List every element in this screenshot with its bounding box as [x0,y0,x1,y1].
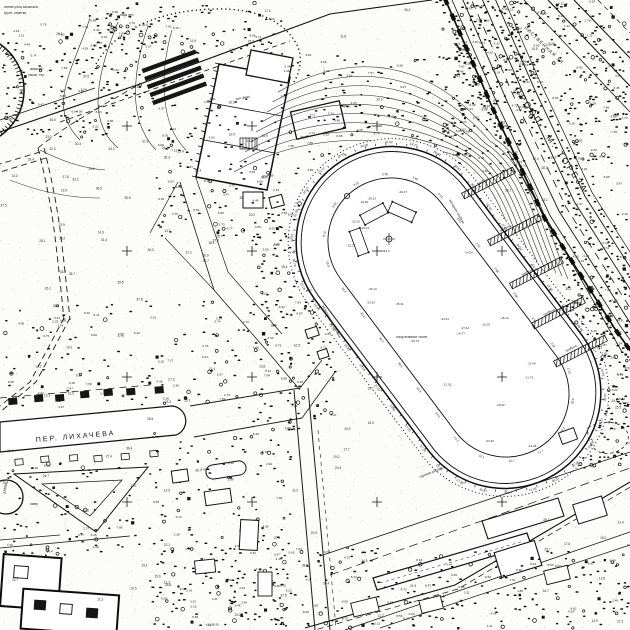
svg-text:-39.74: -39.74 [410,339,419,343]
svg-text:3.93: 3.93 [209,136,215,140]
svg-text:6.15: 6.15 [591,329,597,333]
svg-text:4.39: 4.39 [268,173,274,177]
svg-text:4.54: 4.54 [616,342,622,346]
svg-text:25.3: 25.3 [248,39,254,43]
svg-text:31.4: 31.4 [101,238,107,242]
svg-text:5.94: 5.94 [615,74,621,78]
svg-text:36.7: 36.7 [69,272,75,276]
svg-text:4.19: 4.19 [13,29,19,33]
svg-text:5.92: 5.92 [213,622,219,626]
svg-text:38.6: 38.6 [302,563,308,567]
svg-text:4.40: 4.40 [93,28,99,32]
svg-text:6.12: 6.12 [558,2,564,6]
svg-text:6.20: 6.20 [589,0,595,4]
svg-text:8.68: 8.68 [303,610,309,614]
svg-text:7.59: 7.59 [61,66,67,70]
svg-text:25.1: 25.1 [184,399,190,403]
svg-text:5.18: 5.18 [558,14,564,18]
svg-text:7.86: 7.86 [116,526,122,530]
svg-text:3.72: 3.72 [229,184,235,188]
svg-text:5.56: 5.56 [153,500,159,504]
svg-text:2.15: 2.15 [190,605,196,609]
svg-text:3.41: 3.41 [212,597,218,601]
svg-text:12.8: 12.8 [145,77,151,81]
svg-text:9.59: 9.59 [263,248,269,252]
svg-text:32.3: 32.3 [49,147,55,151]
svg-text:29.4: 29.4 [28,158,34,162]
svg-text:9.41: 9.41 [94,313,100,317]
svg-text:11.2: 11.2 [378,614,384,618]
svg-text:2.49: 2.49 [612,599,618,603]
svg-text:-14.28: -14.28 [528,444,537,448]
svg-text:7.64: 7.64 [296,547,302,551]
svg-text:7.79: 7.79 [82,25,88,29]
svg-text:3.74: 3.74 [81,88,87,92]
svg-text:15.0: 15.0 [600,536,606,540]
svg-text:2.82: 2.82 [325,332,331,336]
svg-text:31.0: 31.0 [68,391,74,395]
svg-text:сквер: сквер [30,502,38,506]
svg-text:-31.64: -31.64 [527,361,536,365]
svg-text:8.60: 8.60 [516,108,522,112]
svg-text:8.94: 8.94 [416,558,422,562]
svg-text:5.22: 5.22 [612,388,618,392]
svg-text:4.92: 4.92 [487,50,493,54]
svg-text:5.12: 5.12 [265,369,271,373]
svg-text:33.2: 33.2 [72,178,78,182]
svg-text:5.95: 5.95 [312,604,318,608]
svg-text:8.68: 8.68 [257,180,263,184]
svg-text:21.4: 21.4 [209,367,215,371]
svg-text:6.85: 6.85 [342,599,348,603]
svg-text:30.3: 30.3 [382,172,388,176]
svg-text:8.20: 8.20 [269,17,275,21]
svg-text:3.38: 3.38 [174,532,180,536]
svg-text:4.44: 4.44 [583,254,589,258]
svg-text:8.39: 8.39 [253,432,259,436]
svg-text:9.90: 9.90 [516,568,522,572]
svg-text:-29.47: -29.47 [399,190,408,194]
svg-text:6.65: 6.65 [336,134,342,138]
svg-text:2.72: 2.72 [243,320,249,324]
svg-text:4.22: 4.22 [113,68,119,72]
svg-text:7.47: 7.47 [67,386,73,390]
svg-text:23.1: 23.1 [542,198,548,202]
svg-text:4.47: 4.47 [576,202,582,206]
svg-text:36.2: 36.2 [404,8,410,12]
svg-text:36.5: 36.5 [50,118,56,122]
svg-text:5.47: 5.47 [223,193,229,197]
svg-text:4.38: 4.38 [76,110,82,114]
svg-text:27.8: 27.8 [62,175,68,179]
svg-text:15.6: 15.6 [154,575,160,579]
svg-text:7.94: 7.94 [264,374,270,378]
svg-text:6.20: 6.20 [134,331,140,335]
svg-text:31.9: 31.9 [142,139,148,143]
svg-text:37.5: 37.5 [280,593,286,597]
svg-text:27.4: 27.4 [106,454,112,458]
svg-text:18.5: 18.5 [208,241,214,245]
svg-text:4.47: 4.47 [58,405,64,409]
svg-text:32.7: 32.7 [203,259,209,263]
svg-text:8.11: 8.11 [600,155,606,159]
svg-text:9.63: 9.63 [168,179,174,183]
svg-text:4.42: 4.42 [578,259,584,263]
svg-text:3.30: 3.30 [482,169,488,173]
svg-text:34.7: 34.7 [543,589,549,593]
svg-text:4.30: 4.30 [573,254,579,258]
svg-text:9.68: 9.68 [8,380,14,384]
svg-text:34.4: 34.4 [323,582,329,586]
svg-text:6.48: 6.48 [457,69,463,73]
svg-text:9.68: 9.68 [387,600,393,604]
svg-text:244.0: 244.0 [382,249,390,253]
svg-text:25.7: 25.7 [544,547,550,551]
svg-text:26.2: 26.2 [56,32,62,36]
svg-text:3.31: 3.31 [190,599,196,603]
svg-text:14.4: 14.4 [47,550,53,554]
svg-text:16.4: 16.4 [7,449,13,453]
svg-text:-26.33: -26.33 [367,197,376,201]
svg-text:7.48: 7.48 [276,496,282,500]
svg-text:6.30: 6.30 [69,381,75,385]
svg-text:5.66: 5.66 [158,143,164,147]
svg-text:3.44: 3.44 [235,604,241,608]
svg-text:5.63: 5.63 [288,550,294,554]
svg-text:12.5: 12.5 [164,488,170,492]
svg-text:21.9: 21.9 [410,584,416,588]
svg-text:8.87: 8.87 [473,40,479,44]
svg-text:3.34: 3.34 [57,324,63,328]
svg-text:6.15: 6.15 [158,359,164,363]
svg-text:7.20: 7.20 [7,543,13,547]
svg-text:8.25: 8.25 [297,380,303,384]
svg-text:8.67: 8.67 [297,311,303,315]
svg-text:2.76: 2.76 [202,344,208,348]
svg-text:36.9: 36.9 [96,187,102,191]
svg-text:9.27: 9.27 [403,617,409,621]
svg-text:8.67: 8.67 [460,127,466,131]
svg-text:3.37: 3.37 [482,106,488,110]
svg-text:11.2: 11.2 [292,489,298,493]
svg-text:3.85: 3.85 [255,225,261,229]
svg-text:15.8: 15.8 [247,139,253,143]
svg-text:9.65: 9.65 [280,584,286,588]
svg-text:26.8: 26.8 [53,304,59,308]
svg-text:32.9: 32.9 [229,133,235,137]
svg-text:27.4: 27.4 [274,536,280,540]
svg-text:4.14: 4.14 [467,107,473,111]
svg-text:29.2: 29.2 [333,455,339,459]
svg-text:2.88: 2.88 [476,18,482,22]
svg-text:-11.73: -11.73 [525,375,534,379]
svg-text:19.7: 19.7 [367,386,373,390]
svg-text:12.2: 12.2 [164,581,170,585]
svg-text:7.22: 7.22 [605,288,611,292]
svg-text:13.6: 13.6 [259,364,265,368]
svg-text:7.79: 7.79 [621,116,627,120]
svg-text:9.98: 9.98 [90,19,96,23]
svg-text:22.9: 22.9 [61,188,67,192]
svg-text:11.5: 11.5 [262,292,268,296]
svg-text:4.39: 4.39 [82,46,88,50]
svg-text:7.57: 7.57 [368,71,374,75]
svg-text:38.7: 38.7 [541,166,547,170]
svg-text:4.72: 4.72 [512,103,518,107]
svg-text:33.0: 33.0 [376,98,382,102]
svg-text:16.0: 16.0 [368,421,374,425]
svg-text:15.4: 15.4 [281,265,287,269]
svg-text:6.97: 6.97 [159,106,165,110]
svg-text:8.80: 8.80 [281,377,287,381]
svg-text:8.80: 8.80 [552,96,558,100]
svg-text:4.74: 4.74 [255,35,261,39]
svg-text:линия улиц засыпана: линия улиц засыпана [4,5,38,9]
svg-text:35.1: 35.1 [565,287,571,291]
svg-text:35.5: 35.5 [118,281,124,285]
svg-text:5.47: 5.47 [331,413,337,417]
svg-text:3.72: 3.72 [324,550,330,554]
svg-text:12.4: 12.4 [618,521,624,525]
svg-text:-12.30: -12.30 [443,383,452,387]
svg-text:2.16: 2.16 [273,188,279,192]
svg-text:24.3: 24.3 [335,466,341,470]
svg-text:32.7: 32.7 [12,578,18,582]
svg-text:-15.18: -15.18 [481,322,490,326]
svg-text:5.71: 5.71 [479,41,485,45]
svg-text:14.2: 14.2 [35,365,41,369]
svg-text:3.23: 3.23 [150,316,156,320]
svg-text:35.6: 35.6 [124,196,130,200]
svg-text:10.0: 10.0 [234,613,240,617]
svg-text:5.34: 5.34 [351,575,357,579]
svg-text:8.22: 8.22 [84,311,90,315]
svg-text:-14.77: -14.77 [456,331,465,335]
svg-text:36.4: 36.4 [126,446,132,450]
svg-text:9.37: 9.37 [306,578,312,582]
svg-text:5.88: 5.88 [60,94,66,98]
svg-text:39.7: 39.7 [543,518,549,522]
svg-text:8.43: 8.43 [96,110,102,114]
svg-text:4.71: 4.71 [309,131,315,135]
svg-text:2.97: 2.97 [217,372,223,376]
svg-text:35.3: 35.3 [164,156,170,160]
svg-text:15.9: 15.9 [262,134,268,138]
svg-text:28.7: 28.7 [300,135,306,139]
svg-text:25.6: 25.6 [88,167,94,171]
svg-text:-12.20: -12.20 [351,220,360,224]
svg-text:36.57: 36.57 [603,393,608,401]
svg-text:4.11: 4.11 [487,624,493,628]
svg-text:4.43: 4.43 [239,586,245,590]
svg-text:3.53: 3.53 [281,211,287,215]
svg-text:3.34: 3.34 [267,336,273,340]
svg-text:16.2: 16.2 [228,101,234,105]
svg-text:9.34: 9.34 [202,355,208,359]
svg-text:9.47: 9.47 [400,85,406,89]
svg-text:8.93: 8.93 [269,226,275,230]
svg-text:-23.91: -23.91 [441,317,450,321]
svg-text:11.9: 11.9 [190,39,196,43]
svg-text:13.3: 13.3 [44,394,50,398]
svg-text:6.68: 6.68 [112,10,118,14]
svg-text:5.53: 5.53 [485,575,491,579]
svg-text:26.1: 26.1 [45,287,51,291]
svg-text:36.3: 36.3 [148,248,154,252]
svg-text:-18.14: -18.14 [500,316,509,320]
svg-text:8.62: 8.62 [511,151,517,155]
svg-text:34.2: 34.2 [444,129,450,133]
svg-text:8.48: 8.48 [478,156,484,160]
svg-text:20.0: 20.0 [499,121,505,125]
svg-text:-26.92: -26.92 [496,403,505,407]
svg-text:8.10: 8.10 [262,450,268,454]
svg-text:6.98: 6.98 [192,615,198,619]
svg-text:14.7: 14.7 [164,229,170,233]
svg-text:23.0: 23.0 [45,135,51,139]
svg-text:3.72: 3.72 [603,246,609,250]
svg-text:5.74: 5.74 [214,320,220,324]
svg-text:25.5: 25.5 [615,405,621,409]
svg-text:5.21: 5.21 [286,589,292,593]
svg-text:8.90: 8.90 [288,212,294,216]
svg-text:5.22: 5.22 [93,124,99,128]
svg-text:5.74: 5.74 [31,53,37,57]
svg-text:9.48: 9.48 [289,250,295,254]
svg-text:парк зел.: парк зел. [120,13,134,17]
svg-text:29.7: 29.7 [523,60,529,64]
svg-text:4.32: 4.32 [494,42,500,46]
svg-text:6.92: 6.92 [279,305,285,309]
svg-text:12.6: 12.6 [599,576,605,580]
svg-text:7.70: 7.70 [575,157,581,161]
svg-text:8.95: 8.95 [18,322,24,326]
svg-text:4.88: 4.88 [218,211,224,215]
svg-text:8.75: 8.75 [275,344,281,348]
svg-text:5.24: 5.24 [494,71,500,75]
svg-text:14.2: 14.2 [12,174,18,178]
svg-text:28.5: 28.5 [147,417,153,421]
svg-text:8.35: 8.35 [204,179,210,183]
svg-text:12.2: 12.2 [185,250,191,254]
svg-text:2.27: 2.27 [83,527,89,531]
svg-text:20.5: 20.5 [311,531,317,535]
svg-text:-33.33: -33.33 [366,301,375,305]
svg-text:12.6: 12.6 [132,85,138,89]
svg-text:8.37: 8.37 [537,10,543,14]
svg-text:6.85: 6.85 [604,175,610,179]
svg-text:6.66: 6.66 [253,346,259,350]
svg-text:-35.13: -35.13 [368,287,377,291]
svg-text:20.0: 20.0 [249,213,255,217]
svg-text:4.18: 4.18 [185,547,191,551]
svg-text:8.21: 8.21 [98,104,104,108]
svg-text:26.70: 26.70 [385,140,393,144]
svg-text:8.15: 8.15 [173,26,179,30]
svg-text:6.67: 6.67 [306,289,312,293]
svg-text:37.8: 37.8 [136,298,142,302]
svg-text:3.81: 3.81 [305,53,311,57]
svg-text:5.45: 5.45 [156,380,162,384]
svg-text:9.56: 9.56 [107,119,113,123]
svg-text:38.1: 38.1 [505,188,511,192]
svg-text:38.0: 38.0 [271,323,277,327]
svg-text:27.1: 27.1 [309,114,315,118]
svg-text:7.35: 7.35 [611,130,617,134]
svg-text:7.44: 7.44 [564,24,570,28]
svg-text:27.3: 27.3 [168,377,174,381]
svg-text:11.8: 11.8 [340,34,346,38]
svg-text:17.4: 17.4 [533,157,539,161]
svg-text:37.6: 37.6 [83,75,89,79]
svg-text:6.48: 6.48 [613,114,619,118]
svg-text:4.46: 4.46 [24,42,30,46]
svg-text:14.9: 14.9 [592,619,598,623]
svg-text:2.46: 2.46 [284,69,290,73]
svg-text:5.71: 5.71 [617,373,623,377]
svg-text:24.7: 24.7 [43,474,49,478]
svg-text:3.73: 3.73 [219,222,225,226]
svg-text:5.34: 5.34 [284,65,290,69]
svg-text:34.5: 34.5 [361,559,367,563]
svg-text:грунт. отметки: грунт. отметки [4,11,26,15]
svg-text:22.1: 22.1 [164,543,170,547]
svg-text:10.7: 10.7 [509,459,515,463]
svg-text:4.94: 4.94 [454,74,460,78]
svg-text:3.47: 3.47 [610,356,616,360]
svg-text:21.7: 21.7 [608,64,614,68]
svg-text:6.31: 6.31 [210,97,216,101]
svg-text:4.16: 4.16 [6,117,12,121]
svg-text:6.87: 6.87 [425,584,431,588]
svg-text:9.47: 9.47 [38,103,44,107]
svg-text:7.61: 7.61 [510,578,516,582]
svg-text:4.73: 4.73 [518,93,524,97]
svg-text:8.91: 8.91 [162,134,168,138]
svg-text:3.75: 3.75 [172,212,178,216]
svg-text:6.27: 6.27 [503,58,509,62]
svg-text:7.68: 7.68 [603,105,609,109]
svg-text:17.4: 17.4 [264,9,270,13]
svg-text:2.32: 2.32 [587,34,593,38]
svg-text:5.72: 5.72 [320,345,326,349]
svg-text:6.75: 6.75 [43,334,49,338]
svg-text:8.75: 8.75 [342,617,348,621]
svg-text:10.9: 10.9 [531,47,537,51]
svg-text:7.90: 7.90 [506,68,512,72]
svg-text:4.57: 4.57 [466,6,472,10]
svg-text:37.5: 37.5 [0,204,6,208]
svg-text:8.43: 8.43 [530,562,536,566]
svg-text:30.3: 30.3 [75,142,81,146]
svg-text:2.74: 2.74 [224,393,230,397]
svg-text:14.3: 14.3 [98,230,104,234]
svg-text:27.2: 27.2 [617,620,623,624]
svg-text:6.91: 6.91 [101,35,107,39]
svg-text:2.16: 2.16 [622,212,628,216]
svg-text:7.84: 7.84 [295,300,301,304]
svg-text:36.7: 36.7 [195,468,201,472]
svg-text:25.7: 25.7 [216,234,222,238]
svg-text:3.13: 3.13 [521,163,527,167]
svg-text:4.85: 4.85 [517,589,523,593]
svg-text:9.42: 9.42 [250,551,256,555]
svg-text:3.94: 3.94 [241,600,247,604]
svg-text:16.9: 16.9 [550,155,556,159]
svg-text:2.25: 2.25 [52,319,58,323]
svg-text:-16.01: -16.01 [361,226,370,230]
svg-text:2.78: 2.78 [585,18,591,22]
